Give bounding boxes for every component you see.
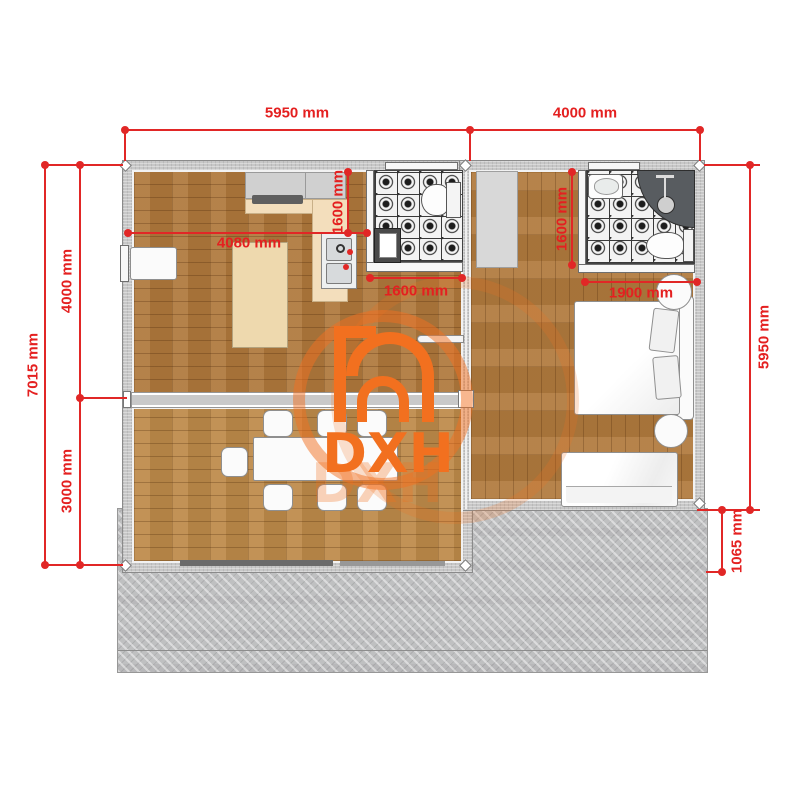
toilet2-tank — [683, 229, 694, 262]
dimension-endpoint — [718, 568, 726, 576]
toilet-tank — [446, 182, 461, 218]
kitchen-cabinet-divider — [305, 173, 306, 198]
bathroom1-vanity-sink — [379, 233, 397, 258]
dim-line-right-patio — [721, 510, 723, 572]
dimension-endpoint — [568, 168, 576, 176]
wall-jamb — [123, 391, 131, 408]
dim-label-left-upper: 4000 mm — [59, 249, 76, 313]
dim-label-top-right: 4000 mm — [553, 105, 617, 122]
dim-label-bath2-height: 1600 mm — [554, 187, 571, 251]
dim-label-kitchen-run: 1600 mm — [330, 170, 347, 234]
dim-line-bath2-height — [571, 172, 573, 265]
dimension-endpoint — [718, 506, 726, 514]
dim-label-right-main: 5950 mm — [756, 305, 773, 369]
sink-faucet-icon — [336, 244, 345, 253]
sofa-seat-line — [566, 486, 672, 503]
dimension-endpoint — [124, 229, 132, 237]
dimension-endpoint — [363, 229, 371, 237]
dim-label-living-width: 4080 mm — [217, 235, 281, 252]
shower-arm-icon — [664, 176, 666, 198]
dim-line-top-left — [125, 129, 470, 131]
window — [120, 245, 129, 282]
dim-label-left-lower: 3000 mm — [59, 449, 76, 513]
patio-edge-line — [118, 650, 707, 651]
sliding-door — [180, 560, 333, 566]
dimension-endpoint — [693, 278, 701, 286]
extension-line — [45, 164, 123, 166]
dim-line-bath1-width — [370, 277, 462, 279]
dim-line-top-right — [470, 129, 700, 131]
dimension-endpoint — [41, 161, 49, 169]
floor-plan: DXH DXH 5950 mm 4000 mm 7015 mm 4000 mm … — [0, 0, 800, 800]
dim-label-top-left: 5950 mm — [265, 105, 329, 122]
dimension-endpoint — [458, 274, 466, 282]
wardrobe — [476, 171, 518, 268]
window — [588, 162, 640, 170]
dimension-endpoint — [76, 394, 84, 402]
dimension-endpoint — [746, 506, 754, 514]
logo-text: DXH — [322, 422, 454, 485]
extension-line — [124, 130, 126, 161]
extension-line — [80, 397, 127, 399]
nightstand — [654, 414, 688, 448]
dim-line-kitchen-run — [347, 172, 349, 233]
dim-label-left-total: 7015 mm — [25, 333, 42, 397]
dimension-endpoint — [121, 126, 129, 134]
dim-line-left-split — [79, 165, 81, 565]
kitchen-cooktop — [252, 195, 303, 204]
sliding-door — [340, 561, 445, 566]
dimension-endpoint — [343, 264, 349, 270]
dimension-endpoint — [581, 278, 589, 286]
dim-line-left-total — [44, 165, 46, 565]
extension-line — [45, 564, 123, 566]
dimension-endpoint — [76, 561, 84, 569]
dim-line-right-main — [749, 165, 751, 510]
dim-label-bed-width: 1900 mm — [609, 285, 673, 302]
living-bench — [130, 247, 177, 280]
dimension-endpoint — [746, 161, 754, 169]
extension-line — [699, 130, 701, 161]
dxh-logo: DXH DXH — [220, 280, 580, 560]
dimension-endpoint — [568, 261, 576, 269]
dimension-endpoint — [347, 249, 353, 255]
dimension-endpoint — [696, 126, 704, 134]
dimension-endpoint — [41, 561, 49, 569]
bathroom2-south-wall — [578, 264, 695, 273]
washbasin-bowl — [594, 178, 619, 195]
dimension-endpoint — [466, 126, 474, 134]
bathroom1-south-wall — [366, 262, 463, 272]
window — [385, 162, 458, 170]
dim-label-right-patio: 1065 mm — [729, 509, 746, 573]
dim-line-bed-width — [585, 281, 697, 283]
bed-pillow — [648, 308, 679, 354]
bed-pillow — [652, 355, 682, 400]
bathroom1-west-wall — [366, 170, 374, 272]
shower-head-icon — [657, 196, 675, 214]
toilet2-bowl — [646, 232, 684, 259]
dim-label-bath1-width: 1600 mm — [384, 283, 448, 300]
shower-valve-icon — [656, 175, 674, 178]
dimension-endpoint — [366, 274, 374, 282]
dimension-endpoint — [76, 161, 84, 169]
extension-line — [469, 130, 471, 161]
bathroom2-west-wall — [578, 170, 586, 272]
